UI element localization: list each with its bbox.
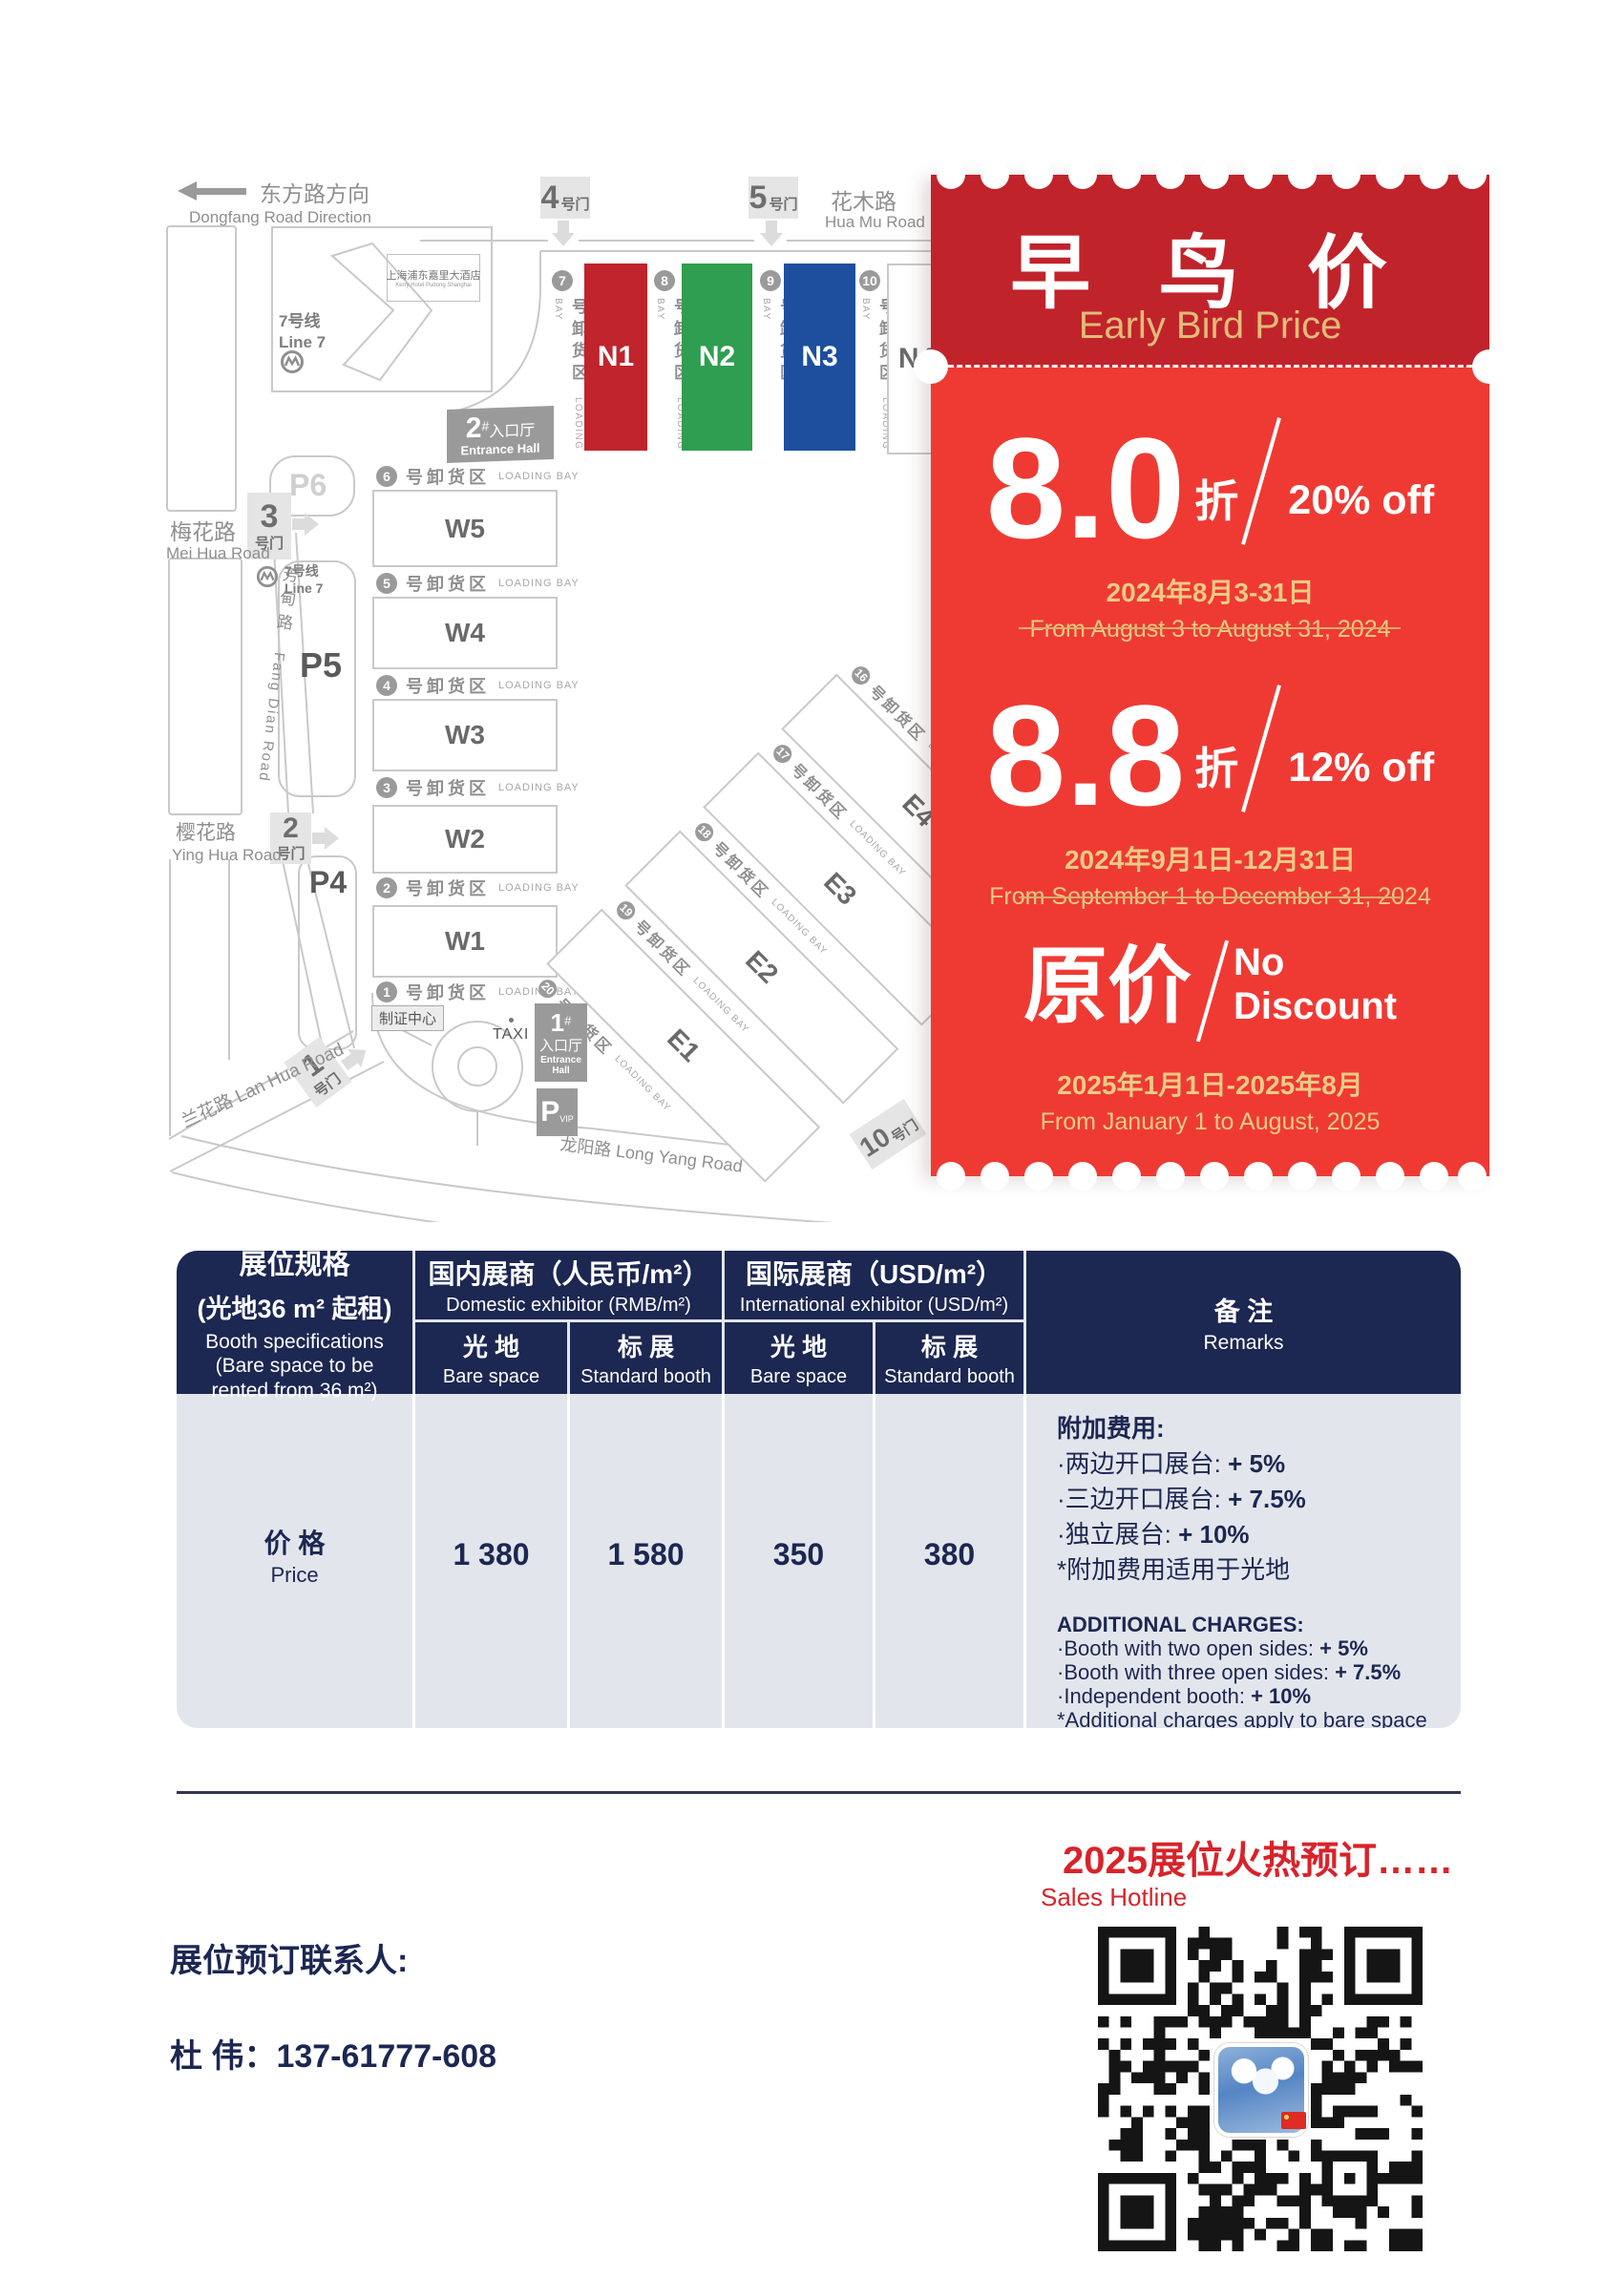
hall-w5: W5	[372, 490, 558, 567]
hall-n2: N2	[682, 264, 752, 451]
hot-booking-title: 2025展位火热预订……	[1063, 1829, 1453, 1885]
table-header-spec: 展位规格 (光地36 m² 起租) Booth specifications (…	[177, 1251, 412, 1394]
coupon-separator-1	[1019, 627, 1401, 629]
huamu-road-zh: 花木路	[831, 183, 896, 216]
contact-label: 展位预订联系人:	[170, 1934, 408, 1981]
gate-4: 4号门	[540, 177, 590, 219]
bay6-label: 6 号卸货区LOADING BAY	[376, 464, 580, 489]
gate-4-arrow-icon	[552, 221, 575, 246]
coupon-tier-1: 8.0 折 20% off 2024年8月3-31日 From August 3…	[931, 415, 1489, 643]
china-flag-icon	[1281, 2112, 1306, 2129]
table-subheader-intl-bare: 光 地 Bare space	[725, 1322, 873, 1394]
table-header-international: 国际展商（USD/m²） International exhibitor (US…	[725, 1251, 1023, 1319]
qr-center-logo	[1214, 2043, 1308, 2137]
hall-n3: N3	[784, 264, 855, 451]
bay5-label: 5 号卸货区LOADING BAY	[376, 571, 580, 596]
yinghua-road-en: Ying Hua Road	[172, 846, 282, 865]
remarks-zh-title: 附加费用:	[1057, 1411, 1448, 1446]
bay7-number: 7	[552, 270, 573, 291]
parking-p5: P5	[300, 645, 342, 686]
remarks-body: 附加费用: ·两边开口展台: + 5% ·三边开口展台: + 7.5% ·独立展…	[1057, 1411, 1448, 1728]
bay2-label: 2 号卸货区LOADING BAY	[376, 875, 580, 900]
taxi-label: TAXI	[493, 1026, 529, 1044]
price-intl-bare: 350	[725, 1537, 873, 1572]
yinghua-road-zh: 樱花路	[176, 817, 236, 846]
hall-w3: W3	[372, 699, 558, 771]
gate-5-arrow-icon	[760, 221, 783, 246]
table-header-domestic: 国内展商（人民币/m²） Domestic exhibitor (RMB/m²)	[415, 1251, 722, 1319]
metro-logo-icon	[280, 349, 305, 374]
price-domestic-std: 1 580	[570, 1537, 722, 1572]
gate-2-arrow-icon	[312, 827, 339, 850]
meihua-road-en: Mei Hua Road	[166, 544, 270, 563]
parking-p6: P6	[289, 468, 327, 503]
bay9-number: 9	[760, 270, 781, 291]
coupon-tier-3: 原价 NoDiscount 2025年1月1日-2025年8月 From Jan…	[931, 939, 1489, 1136]
coupon-tier-2: 8.8 折 12% off 2024年9月1日-12月31日 From Sept…	[931, 683, 1489, 911]
table-subheader-dom-std: 标 展 Standard booth	[570, 1322, 722, 1394]
line7-label-a: 7号线Line 7	[279, 311, 326, 353]
flyer-page: 东方路方向 Dongfang Road Direction 4号门 5号门 花木…	[0, 0, 1624, 2278]
hotel-name-zh: 上海浦东嘉里大酒店	[387, 267, 481, 283]
hall-w2: W2	[372, 805, 558, 874]
badge-center-label: 制证中心	[371, 1005, 444, 1031]
bay10-number: 10	[859, 270, 880, 291]
contact-name-phone: 杜 伟：137-61777-608	[170, 2030, 496, 2077]
early-bird-coupon: 早 鸟 价 Early Bird Price 8.0 折 20% off 202…	[931, 175, 1489, 1176]
coupon-separator-2	[1019, 896, 1401, 898]
gate-3-arrow-icon	[292, 513, 319, 536]
table-header-remarks: 备 注 Remarks	[1026, 1251, 1461, 1394]
price-intl-std: 380	[875, 1537, 1023, 1572]
hall-w4: W4	[372, 597, 558, 669]
kerry-hotel-label: 上海浦东嘉里大酒店 Kerry Hotel Pudong Shanghai	[387, 254, 480, 302]
footer-divider	[177, 1791, 1461, 1794]
entrance-hall-2: 2#入口厅 Entrance Hall	[447, 406, 554, 463]
entrance-hall-1: 1# 入口厅 Entrance Hall	[535, 1003, 587, 1082]
sales-hotline-label: Sales Hotline	[1041, 1883, 1187, 1912]
direction-label-zh: 东方路方向	[260, 176, 369, 208]
gate-5: 5号门	[749, 177, 798, 219]
coupon-dashed-divider	[931, 365, 1489, 368]
price-table: 展位规格 (光地36 m² 起租) Booth specifications (…	[177, 1251, 1461, 1728]
direction-label-en: Dongfang Road Direction	[189, 208, 371, 227]
coupon-title-en: Early Bird Price	[931, 305, 1489, 348]
price-row-label: 价 格 Price	[177, 1523, 412, 1588]
huamu-road-en: Hua Mu Road	[825, 213, 925, 232]
direction-arrow-icon	[178, 181, 246, 200]
hotel-name-en: Kerry Hotel Pudong Shanghai	[395, 283, 471, 288]
remarks-en-title: ADDITIONAL CHARGES:	[1057, 1613, 1448, 1636]
bay8-number: 8	[654, 270, 675, 291]
bay4-label: 4 号卸货区LOADING BAY	[376, 673, 580, 698]
parking-p4: P4	[309, 865, 347, 900]
meihua-road-zh: 梅花路	[170, 514, 236, 546]
bay3-label: 3 号卸货区LOADING BAY	[376, 775, 580, 800]
vip-parking: PVIP	[537, 1088, 578, 1136]
price-domestic-bare: 1 380	[415, 1537, 567, 1572]
table-subheader-intl-std: 标 展 Standard booth	[875, 1322, 1023, 1394]
table-subheader-dom-bare: 光 地 Bare space	[415, 1322, 567, 1394]
taxi-dot	[509, 1018, 514, 1023]
hall-n1: N1	[584, 264, 647, 451]
